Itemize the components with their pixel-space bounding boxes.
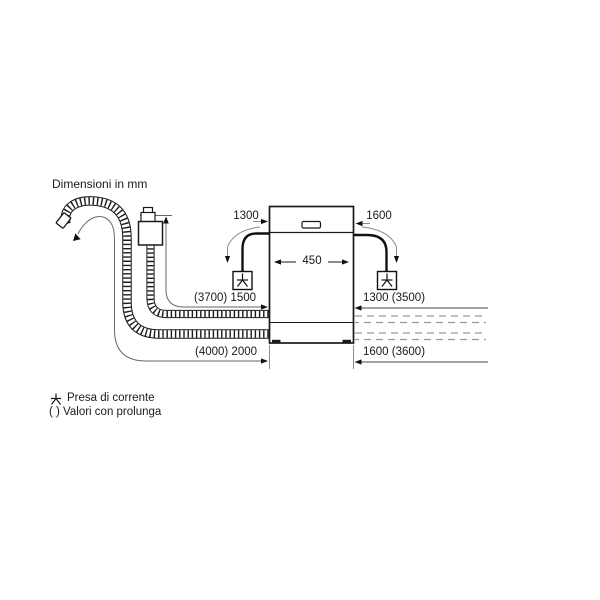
dim-hose-left-lower: (4000) 2000	[184, 346, 268, 359]
power-cable-left	[243, 234, 270, 272]
dim-cord-right: 1600	[361, 210, 397, 223]
extension-lines	[270, 345, 354, 369]
door-handle	[302, 222, 321, 229]
dim-hose-right-lower: 1600 (3600)	[363, 346, 425, 359]
power-cable-right	[354, 235, 387, 272]
foot-right	[343, 340, 352, 344]
dim-cord-left: 1300	[229, 210, 263, 223]
legend-socket-row: Presa di corrente	[49, 392, 155, 406]
alternative-hose-dashed-lines	[355, 316, 486, 340]
aquastop-valve	[139, 208, 163, 246]
dim-hose-right-upper: 1300 (3500)	[363, 292, 425, 305]
socket-icon	[49, 392, 63, 406]
dim-appliance-width: 450	[296, 255, 328, 268]
appliance-outline	[270, 207, 354, 344]
foot-left	[272, 340, 281, 344]
dim-hose-left-upper: (3700) 1500	[183, 292, 267, 305]
socket-box-left	[233, 272, 252, 290]
installation-diagram: Dimensioni in mm 1300 1600 450 (3700) 15…	[0, 0, 600, 600]
diagram-title: Dimensioni in mm	[52, 178, 147, 191]
legend-extension-label: ( ) Valori con prolunga	[49, 406, 161, 418]
diagram-canvas	[0, 0, 600, 600]
legend-socket-label: Presa di corrente	[67, 392, 155, 404]
legend-extension-row: ( ) Valori con prolunga	[49, 406, 161, 418]
right-dimension-arrowheads	[355, 305, 362, 364]
socket-box-right	[378, 272, 397, 290]
down-left-arrow-icon	[73, 233, 81, 241]
